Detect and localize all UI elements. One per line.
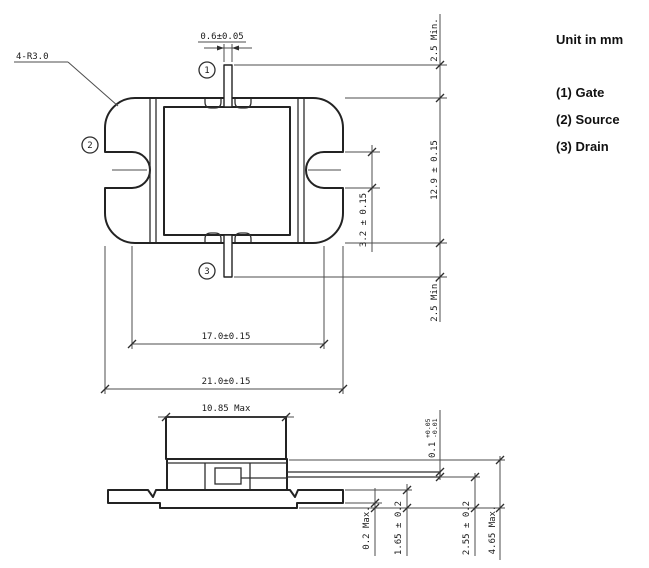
seal-ring-lines <box>150 99 304 242</box>
cap-width-text: 10.85 Max <box>202 404 251 414</box>
mechanical-drawing: 1 2 3 4-R3.0 0.6±0.05 2.5 Min. 12.9 ± 0 <box>0 0 649 568</box>
label-corner-radius: 4-R3.0 <box>14 52 118 106</box>
dim-lead-height: 2.55 ± 0.2 <box>462 473 479 556</box>
side-lead <box>287 472 440 477</box>
marker-gate: 1 <box>199 62 215 78</box>
ceramic-lid <box>164 107 290 235</box>
lead-attach-tabs <box>205 99 251 242</box>
legend-pin-drain: (3) Drain <box>556 139 609 154</box>
legend-pin-source: (2) Source <box>556 112 620 127</box>
flange-thickness-text: 1.65 ± 0.2 <box>394 501 404 555</box>
legend-pin-gate: (1) Gate <box>556 85 604 100</box>
marker-drain: 3 <box>199 263 215 279</box>
marker-source: 2 <box>82 137 98 153</box>
total-height-text: 4.65 Max. <box>488 506 498 555</box>
cap <box>166 417 286 459</box>
body-height-text: 12.9 ± 0.15 <box>430 140 440 200</box>
side-view <box>108 417 440 508</box>
dim-cap-width: 10.85 Max <box>158 404 294 421</box>
dim-right-chain: 2.5 Min. 12.9 ± 0.15 2.5 Min. <box>234 14 447 322</box>
dim-lead-thickness: 0.1 +0.05 -0.01 <box>424 410 444 481</box>
gate-lead-width-text: 0.6±0.05 <box>200 32 243 42</box>
dim-gate-lead-width: 0.6±0.05 <box>198 32 252 62</box>
drain-lead-min-text: 2.5 Min. <box>430 278 440 321</box>
standoff-text: 0.2 Max. <box>362 506 372 549</box>
drawing-sheet: 1 2 3 4-R3.0 0.6±0.05 2.5 Min. 12.9 ± 0 <box>0 0 649 568</box>
slot-width-text: 3.2 ± 0.15 <box>359 193 369 247</box>
marker-source-number: 2 <box>87 141 92 151</box>
gate-lead-min-text: 2.5 Min. <box>430 18 440 61</box>
marker-drain-number: 3 <box>204 267 209 277</box>
gate-lead <box>224 65 232 107</box>
body-width-text: 21.0±0.15 <box>202 377 251 387</box>
feedthrough-detail <box>205 463 287 490</box>
flange <box>108 490 343 508</box>
legend-unit: Unit in mm <box>556 32 623 47</box>
dim-flange-thickness: 1.65 ± 0.2 <box>394 484 411 556</box>
lead-thickness-base-text: 0.1 <box>428 442 438 458</box>
marker-gate-number: 1 <box>204 66 209 76</box>
legend: Unit in mm (1) Gate (2) Source (3) Drain <box>556 32 623 154</box>
top-view <box>105 65 343 277</box>
dim-slot-width: 3.2 ± 0.15 <box>345 145 380 252</box>
slot-pitch-text: 17.0±0.15 <box>202 332 251 342</box>
dim-standoff: 0.2 Max. <box>362 488 379 556</box>
lead-height-text: 2.55 ± 0.2 <box>462 501 472 555</box>
lead-thickness-minus-text: -0.01 <box>431 418 439 438</box>
drain-lead <box>224 235 232 277</box>
corner-radius-text: 4-R3.0 <box>16 52 49 62</box>
